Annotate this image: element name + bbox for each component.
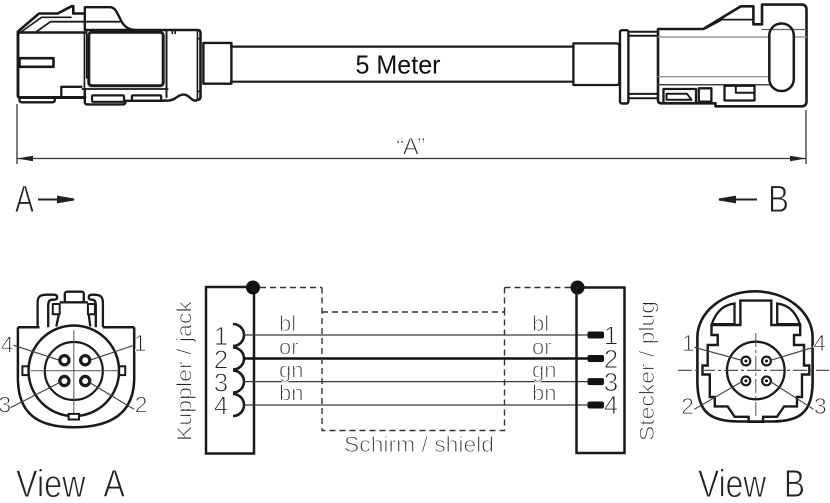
svg-text:Kuppler / jack: Kuppler / jack <box>174 300 197 441</box>
svg-text:4: 4 <box>1 332 14 358</box>
svg-text:gn: gn <box>532 358 556 383</box>
svg-text:or: or <box>279 335 299 360</box>
svg-text:4: 4 <box>813 330 826 356</box>
svg-text:“A”: “A” <box>396 134 425 161</box>
svg-text:bl: bl <box>532 311 549 336</box>
svg-text:4: 4 <box>214 391 228 421</box>
svg-text:or: or <box>532 335 552 360</box>
svg-text:Stecker / plug: Stecker / plug <box>636 301 659 441</box>
svg-text:A: A <box>15 179 34 221</box>
svg-text:B: B <box>768 179 789 221</box>
svg-text:2: 2 <box>681 393 694 419</box>
svg-text:2: 2 <box>135 391 148 417</box>
svg-text:Schirm / shield: Schirm / shield <box>344 432 494 457</box>
svg-text:gn: gn <box>279 358 303 383</box>
svg-text:View B: View B <box>698 463 805 503</box>
svg-text:3: 3 <box>0 391 11 417</box>
svg-text:bn: bn <box>279 381 303 406</box>
svg-text:4: 4 <box>604 390 618 420</box>
svg-text:bn: bn <box>532 381 556 406</box>
svg-text:1: 1 <box>134 330 147 356</box>
svg-text:1: 1 <box>682 330 695 356</box>
svg-text:3: 3 <box>814 393 827 419</box>
svg-text:bl: bl <box>279 311 296 336</box>
svg-text:View A: View A <box>16 463 125 503</box>
svg-text:5 Meter: 5 Meter <box>356 50 441 80</box>
